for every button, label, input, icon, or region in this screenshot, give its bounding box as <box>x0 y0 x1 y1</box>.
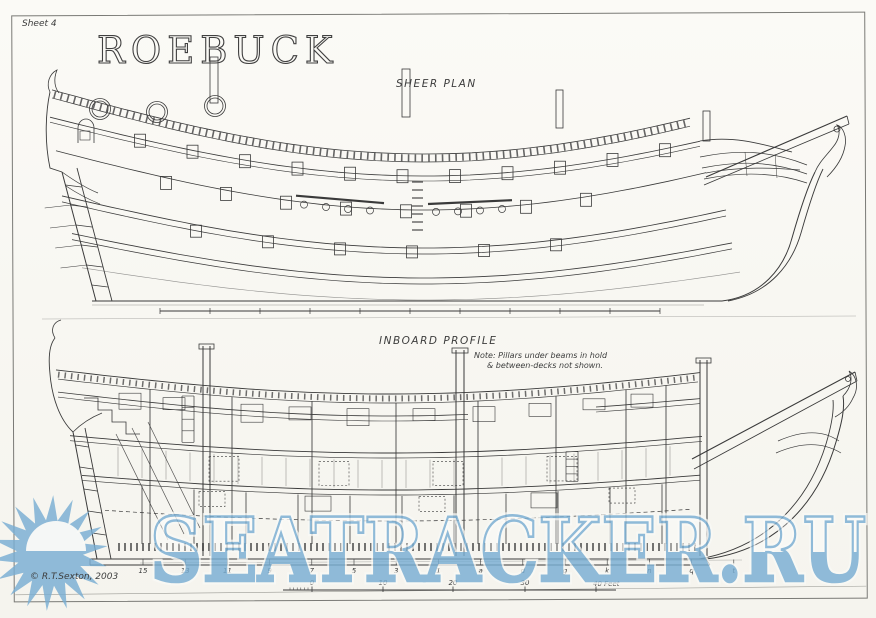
station-label: 15 <box>139 567 148 575</box>
copyright-signature: © R.T.Sexton, 2003 <box>30 572 118 582</box>
plan-title: ROEBUCK <box>97 29 339 72</box>
plan-sheet: Sheet 4 ROEBUCK SHEER PLAN INBOARD PROFI… <box>0 0 876 618</box>
note-line-2: & between-decks not shown. <box>487 361 603 370</box>
sheer-plan-label: SHEER PLAN <box>396 78 477 90</box>
sheer-plan-drawing <box>42 57 856 319</box>
inboard-profile-label: INBOARD PROFILE <box>379 335 497 347</box>
note-line-1: Note: Pillars under beams in hold <box>474 351 608 360</box>
ship-plan-drawing: Sheet 4 ROEBUCK SHEER PLAN INBOARD PROFI… <box>0 0 876 618</box>
sheet-number-label: Sheet 4 <box>22 19 57 29</box>
sunburst-logo <box>0 495 108 611</box>
